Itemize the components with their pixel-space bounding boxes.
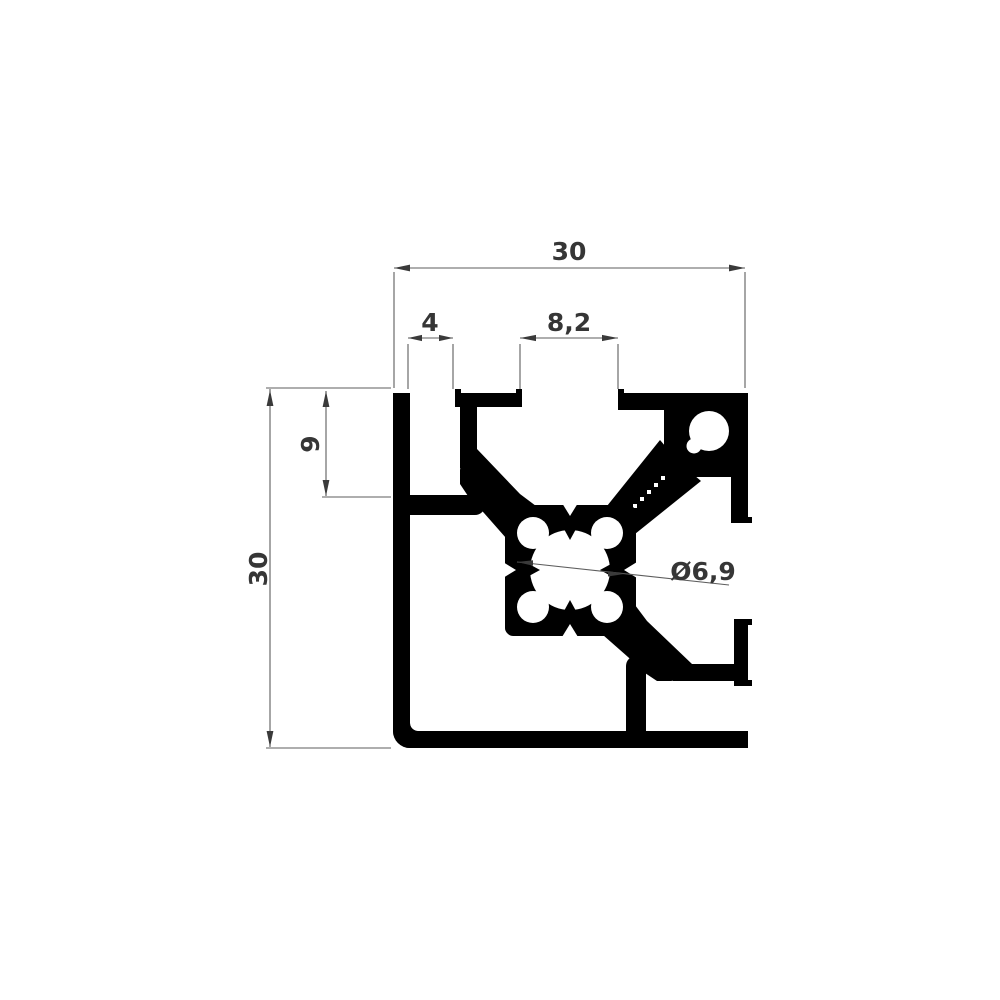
- dim-groove-width: 4: [408, 308, 453, 389]
- profile-top-tab-ridge-right: [516, 389, 522, 394]
- screw-channel-lobe-bl: [517, 591, 549, 623]
- dim-arrow: [729, 265, 745, 272]
- screw-channel-lobe-br: [591, 591, 623, 623]
- drawing-canvas: 30 4 8,2 30: [0, 0, 1000, 1000]
- dim-arrow: [323, 391, 330, 407]
- dim-arrow: [267, 390, 274, 406]
- screw-channel-lobe-tl: [517, 517, 549, 549]
- dim-groove-depth: 9: [296, 391, 391, 497]
- screw-channel-lobe-tr: [591, 517, 623, 549]
- profile-cross-section-drawing: 30 4 8,2 30: [0, 0, 1000, 1000]
- dim-hole-diameter-label: Ø6,9: [670, 557, 736, 586]
- dim-arrow: [394, 265, 410, 272]
- dim-top-width-label: 30: [552, 237, 587, 266]
- dim-left-height-label: 30: [244, 552, 273, 587]
- dim-slot-opening: 8,2: [520, 308, 618, 389]
- dim-slot-opening-label: 8,2: [547, 308, 591, 337]
- profile-cutouts: [503, 411, 729, 637]
- profile-top-tab-ridge-left: [455, 389, 461, 394]
- dim-arrow: [267, 731, 274, 747]
- dim-groove-width-label: 4: [421, 308, 438, 337]
- dim-arrow: [602, 335, 618, 341]
- corner-screw-hole-notch: [687, 439, 702, 454]
- dim-arrow: [520, 335, 536, 341]
- dim-arrow: [323, 480, 330, 496]
- dim-arrow: [439, 335, 453, 341]
- dim-groove-depth-label: 9: [296, 435, 325, 452]
- dim-arrow: [408, 335, 422, 341]
